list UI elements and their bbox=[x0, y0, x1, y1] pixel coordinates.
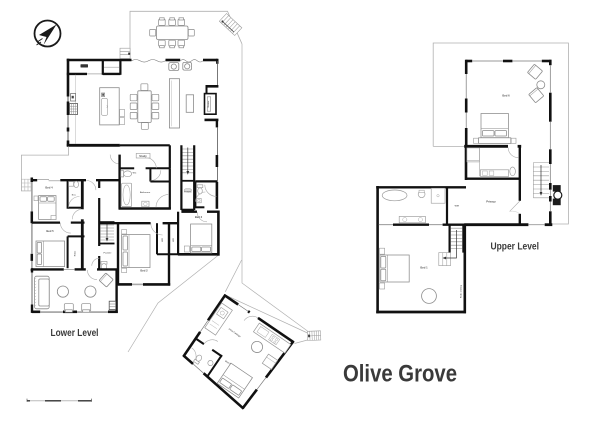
svg-text:Powder: Powder bbox=[184, 192, 192, 194]
svg-text:Bed 1: Bed 1 bbox=[420, 266, 428, 270]
svg-text:WR: WR bbox=[162, 238, 164, 242]
svg-text:Bed 4: Bed 4 bbox=[45, 186, 53, 190]
svg-text:Privacy: Privacy bbox=[486, 200, 496, 204]
svg-text:Bathroom: Bathroom bbox=[140, 191, 150, 194]
svg-text:Lower Level: Lower Level bbox=[51, 328, 99, 339]
svg-text:Olive Grove: Olive Grove bbox=[343, 361, 457, 388]
svg-text:WIR: WIR bbox=[455, 206, 460, 208]
svg-text:Study: Study bbox=[139, 154, 147, 158]
svg-text:Heater: Heater bbox=[207, 100, 210, 107]
svg-text:Bed 2: Bed 2 bbox=[140, 269, 148, 273]
svg-text:Bed 5: Bed 5 bbox=[46, 229, 54, 233]
svg-text:Upper Level: Upper Level bbox=[491, 241, 540, 252]
svg-text:Powder: Powder bbox=[104, 253, 112, 255]
svg-text:Bed 6: Bed 6 bbox=[502, 94, 510, 98]
svg-text:Bed 3: Bed 3 bbox=[195, 215, 203, 219]
svg-text:WR: WR bbox=[173, 238, 175, 242]
svg-text:Robe sliding: Robe sliding bbox=[461, 284, 463, 298]
svg-text:WC: WC bbox=[133, 173, 137, 175]
svg-text:Robe: Robe bbox=[75, 250, 77, 256]
